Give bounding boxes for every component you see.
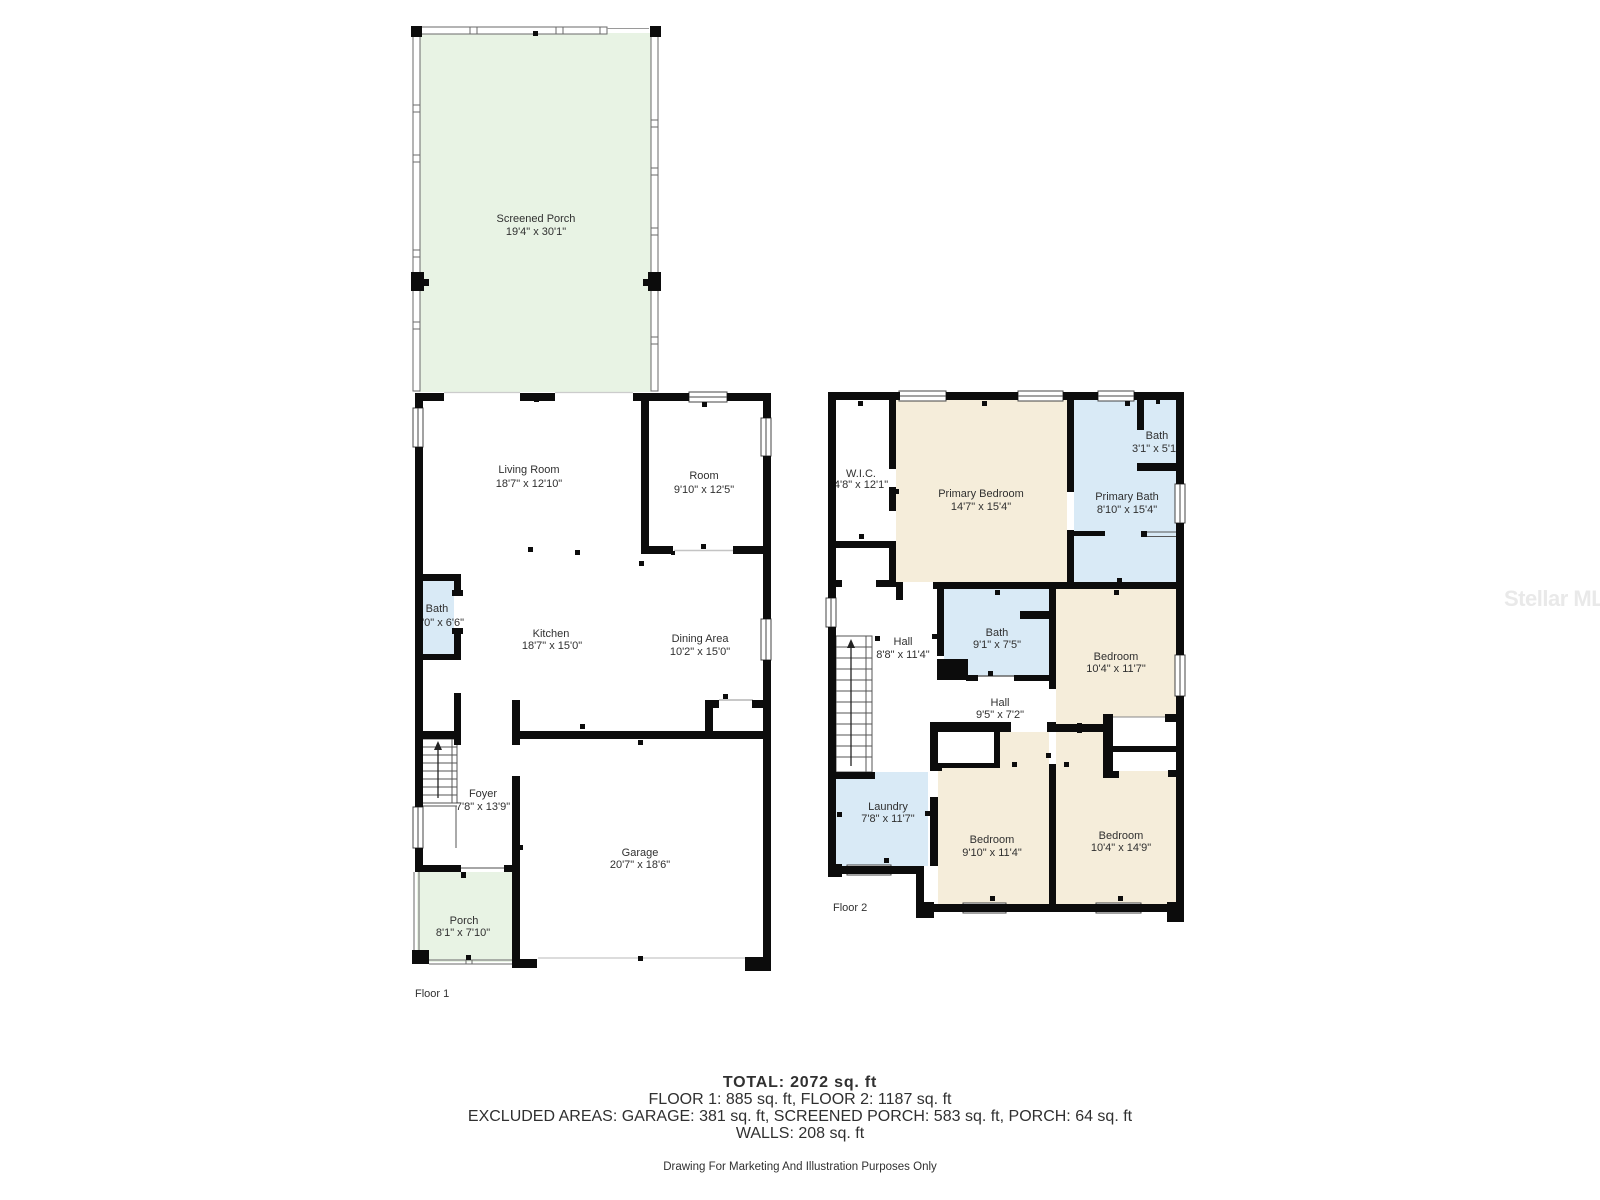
svg-text:Bath: Bath	[986, 627, 1009, 639]
svg-text:10'4" x 14'9": 10'4" x 14'9"	[1091, 842, 1151, 854]
svg-text:Hall: Hall	[894, 636, 913, 648]
svg-text:Stellar MLS: Stellar MLS	[1504, 586, 1600, 611]
svg-text:Drawing For Marketing And Illu: Drawing For Marketing And Illustration P…	[663, 1161, 937, 1173]
svg-text:FLOOR 1: 885 sq. ft, FLOOR 2:: FLOOR 1: 885 sq. ft, FLOOR 2: 1187 sq. f…	[649, 1091, 953, 1108]
svg-text:8'8" x 11'4": 8'8" x 11'4"	[876, 649, 929, 661]
svg-text:Screened Porch: Screened Porch	[497, 213, 576, 225]
svg-text:7'0" x 6'6": 7'0" x 6'6"	[416, 617, 464, 629]
svg-text:9'1" x 7'5": 9'1" x 7'5"	[973, 639, 1021, 651]
svg-text:9'10" x 12'5": 9'10" x 12'5"	[674, 484, 734, 496]
svg-text:Kitchen: Kitchen	[533, 628, 570, 640]
svg-text:Bath: Bath	[426, 603, 449, 615]
svg-text:Primary Bedroom: Primary Bedroom	[938, 488, 1024, 500]
svg-text:Bath: Bath	[1146, 430, 1169, 442]
svg-text:Porch: Porch	[450, 915, 479, 927]
svg-text:Room: Room	[689, 470, 718, 482]
svg-text:3'1" x 5'1": 3'1" x 5'1"	[1132, 443, 1180, 455]
svg-text:8'1" x 7'10": 8'1" x 7'10"	[436, 927, 490, 939]
svg-text:10'4" x 11'7": 10'4" x 11'7"	[1086, 663, 1146, 675]
svg-text:Bedroom: Bedroom	[1094, 651, 1139, 663]
svg-text:4'8" x 12'1": 4'8" x 12'1"	[834, 479, 888, 491]
svg-text:TOTAL: 2072 sq. ft: TOTAL: 2072 sq. ft	[723, 1074, 877, 1091]
svg-text:Laundry: Laundry	[868, 801, 908, 813]
svg-text:Garage: Garage	[622, 847, 659, 859]
svg-text:14'7" x 15'4": 14'7" x 15'4"	[951, 501, 1011, 513]
svg-text:WALLS: 208 sq. ft: WALLS: 208 sq. ft	[736, 1125, 865, 1142]
svg-text:Bedroom: Bedroom	[970, 834, 1015, 846]
svg-text:18'7" x 15'0": 18'7" x 15'0"	[522, 640, 582, 652]
svg-text:8'10" x 15'4": 8'10" x 15'4"	[1097, 504, 1157, 516]
svg-text:EXCLUDED AREAS: GARAGE: 381 sq: EXCLUDED AREAS: GARAGE: 381 sq. ft, SCRE…	[468, 1108, 1133, 1125]
svg-text:Bedroom: Bedroom	[1099, 830, 1144, 842]
svg-text:Dining Area: Dining Area	[672, 633, 730, 645]
svg-text:10'2" x 15'0": 10'2" x 15'0"	[670, 646, 730, 658]
svg-text:W.I.C.: W.I.C.	[846, 468, 876, 480]
svg-text:Hall: Hall	[991, 697, 1010, 709]
svg-text:Living Room: Living Room	[498, 464, 559, 476]
svg-text:Foyer: Foyer	[469, 788, 497, 800]
svg-text:20'7" x 18'6": 20'7" x 18'6"	[610, 859, 670, 871]
svg-text:7'8" x 13'9": 7'8" x 13'9"	[456, 801, 510, 813]
svg-text:Floor 1: Floor 1	[415, 988, 449, 1000]
svg-text:7'8" x 11'7": 7'8" x 11'7"	[861, 813, 914, 825]
svg-text:Floor 2: Floor 2	[833, 902, 867, 914]
svg-text:9'10" x 11'4": 9'10" x 11'4"	[962, 847, 1022, 859]
svg-text:18'7" x 12'10": 18'7" x 12'10"	[496, 478, 563, 490]
svg-text:9'5" x 7'2": 9'5" x 7'2"	[976, 709, 1024, 721]
svg-text:Primary Bath: Primary Bath	[1095, 491, 1159, 503]
svg-text:19'4" x 30'1": 19'4" x 30'1"	[506, 226, 566, 238]
